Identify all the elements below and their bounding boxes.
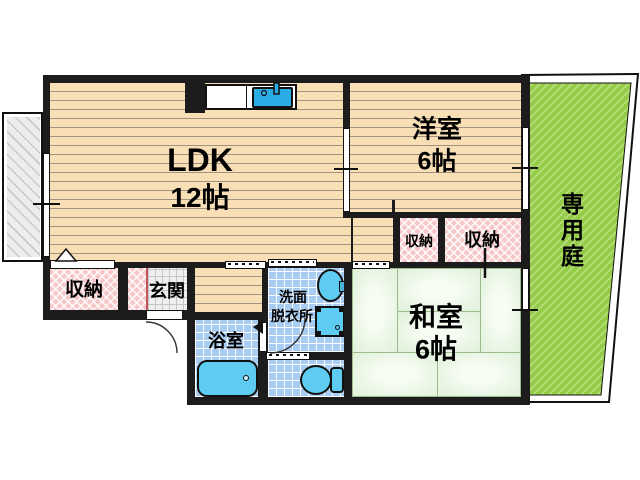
door-triangle-bath bbox=[253, 321, 263, 334]
label-western-size: 6帖 bbox=[418, 150, 457, 175]
entrance-door-arc bbox=[146, 322, 177, 353]
label-washroom-1: 洗面 bbox=[279, 290, 307, 304]
label-washroom-2: 脱衣所 bbox=[271, 309, 313, 323]
label-japanese-size: 6帖 bbox=[415, 337, 457, 364]
label-entrance: 玄関 bbox=[149, 282, 185, 300]
door-triangle-ldk bbox=[56, 249, 76, 261]
floor-plan: LDK 12帖 洋室 6帖 和室 6帖 専用庭 収納 玄関 収納 収納 洗面 脱… bbox=[0, 0, 640, 480]
label-storage-ldk: 収納 bbox=[65, 281, 103, 300]
label-bathroom: 浴室 bbox=[208, 332, 244, 350]
label-ldk-size: 12帖 bbox=[170, 184, 229, 212]
label-storage-right: 収納 bbox=[464, 231, 500, 249]
label-western-room: 洋室 bbox=[412, 118, 462, 143]
faucet-tap-icon bbox=[274, 83, 279, 94]
plan-details bbox=[0, 0, 640, 480]
label-japanese-room: 和室 bbox=[409, 305, 463, 332]
label-private-garden: 専用庭 bbox=[559, 192, 582, 270]
faucet-icon bbox=[262, 91, 267, 96]
label-storage-mid: 収納 bbox=[405, 234, 433, 248]
label-ldk: LDK bbox=[167, 144, 233, 176]
